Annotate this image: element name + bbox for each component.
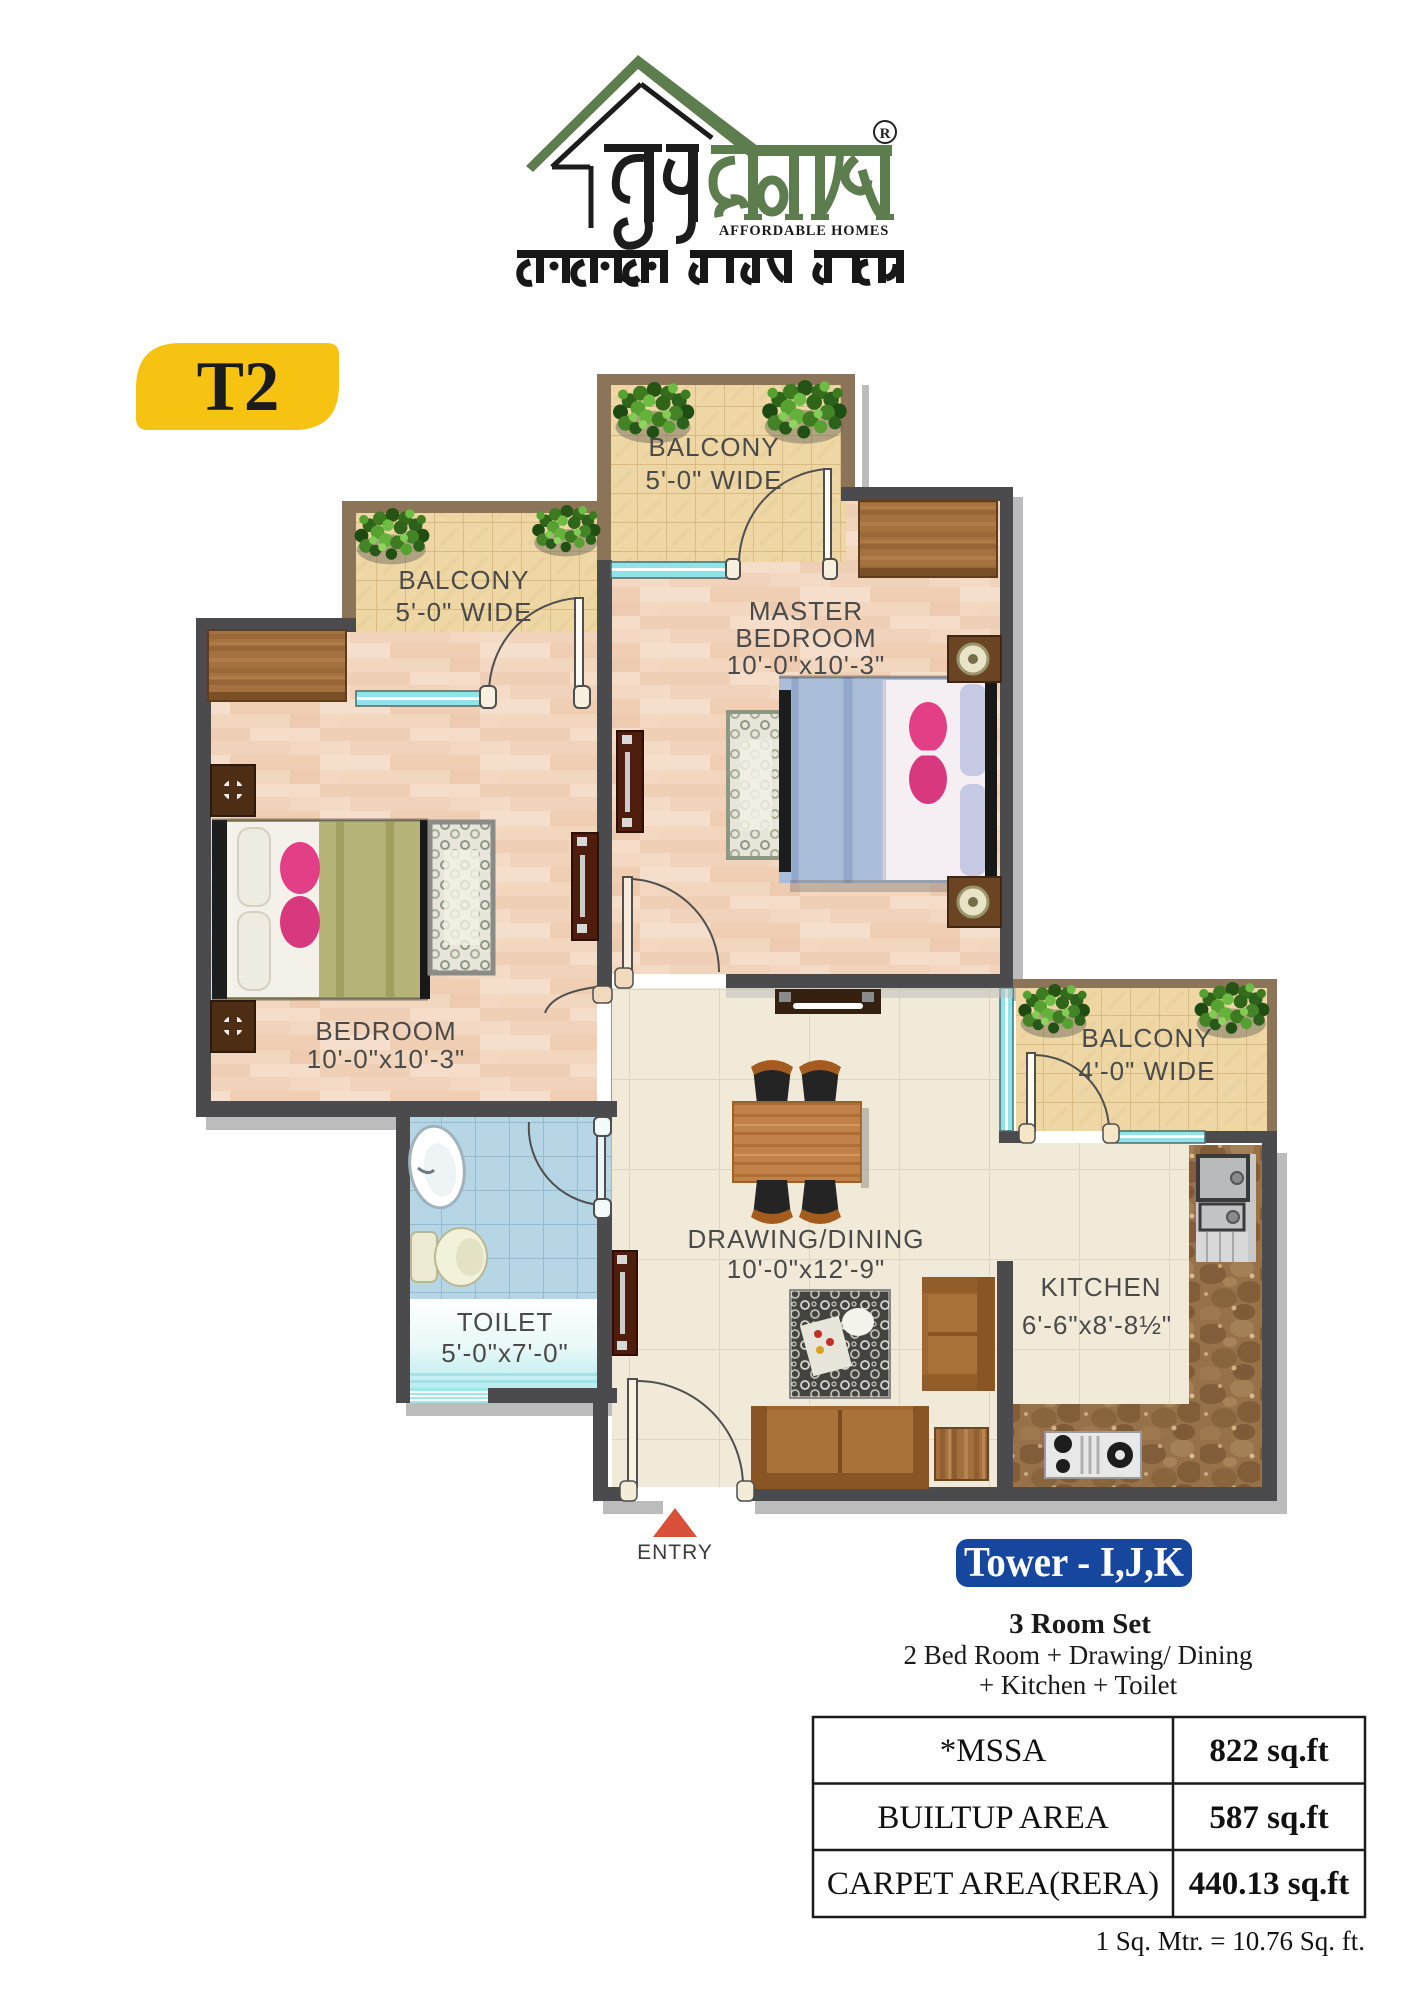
svg-text:4'-0" WIDE: 4'-0" WIDE: [1079, 1056, 1216, 1086]
svg-text:10'-0"x10'-3": 10'-0"x10'-3": [307, 1044, 465, 1074]
svg-text:1 Sq. Mtr. = 10.76 Sq. ft.: 1 Sq. Mtr. = 10.76 Sq. ft.: [1095, 1926, 1365, 1956]
svg-text:2 Bed Room + Drawing/ Dining: 2 Bed Room + Drawing/ Dining: [904, 1640, 1253, 1670]
svg-text:5'-0" WIDE: 5'-0" WIDE: [646, 465, 783, 495]
svg-text:822 sq.ft: 822 sq.ft: [1209, 1733, 1328, 1769]
svg-text:3 Room Set: 3 Room Set: [1009, 1608, 1151, 1640]
svg-text:R: R: [880, 126, 891, 142]
svg-text:440.13 sq.ft: 440.13 sq.ft: [1189, 1866, 1349, 1902]
svg-text:BALCONY: BALCONY: [648, 432, 779, 462]
svg-text:5'-0"x7'-0": 5'-0"x7'-0": [441, 1338, 569, 1368]
svg-text:BEDROOM: BEDROOM: [315, 1016, 456, 1046]
svg-text:T2: T2: [197, 348, 280, 426]
svg-text:BUILTUP AREA: BUILTUP AREA: [877, 1800, 1109, 1836]
svg-text:MASTER: MASTER: [749, 596, 863, 626]
svg-text:5'-0" WIDE: 5'-0" WIDE: [396, 597, 533, 627]
svg-text:10'-0"x12'-9": 10'-0"x12'-9": [727, 1254, 885, 1284]
svg-text:ENTRY: ENTRY: [637, 1541, 713, 1564]
svg-text:KITCHEN: KITCHEN: [1040, 1272, 1161, 1302]
svg-text:6'-6"x8'-8½": 6'-6"x8'-8½": [1022, 1310, 1172, 1340]
svg-text:AFFORDABLE HOMES: AFFORDABLE HOMES: [719, 223, 889, 239]
svg-text:BALCONY: BALCONY: [1081, 1023, 1212, 1053]
svg-text:*MSSA: *MSSA: [940, 1733, 1047, 1769]
svg-text:BALCONY: BALCONY: [398, 565, 529, 595]
svg-text:10'-0"x10'-3": 10'-0"x10'-3": [727, 650, 885, 680]
svg-text:DRAWING/DINING: DRAWING/DINING: [688, 1224, 925, 1254]
svg-text:BEDROOM: BEDROOM: [735, 623, 876, 653]
svg-text:Tower - I,J,K: Tower - I,J,K: [964, 1540, 1184, 1586]
svg-text:+ Kitchen + Toilet: + Kitchen + Toilet: [979, 1670, 1178, 1700]
svg-text:587 sq.ft: 587 sq.ft: [1209, 1800, 1328, 1836]
svg-text:TOILET: TOILET: [457, 1307, 554, 1337]
svg-text:CARPET AREA(RERA): CARPET AREA(RERA): [827, 1866, 1159, 1902]
